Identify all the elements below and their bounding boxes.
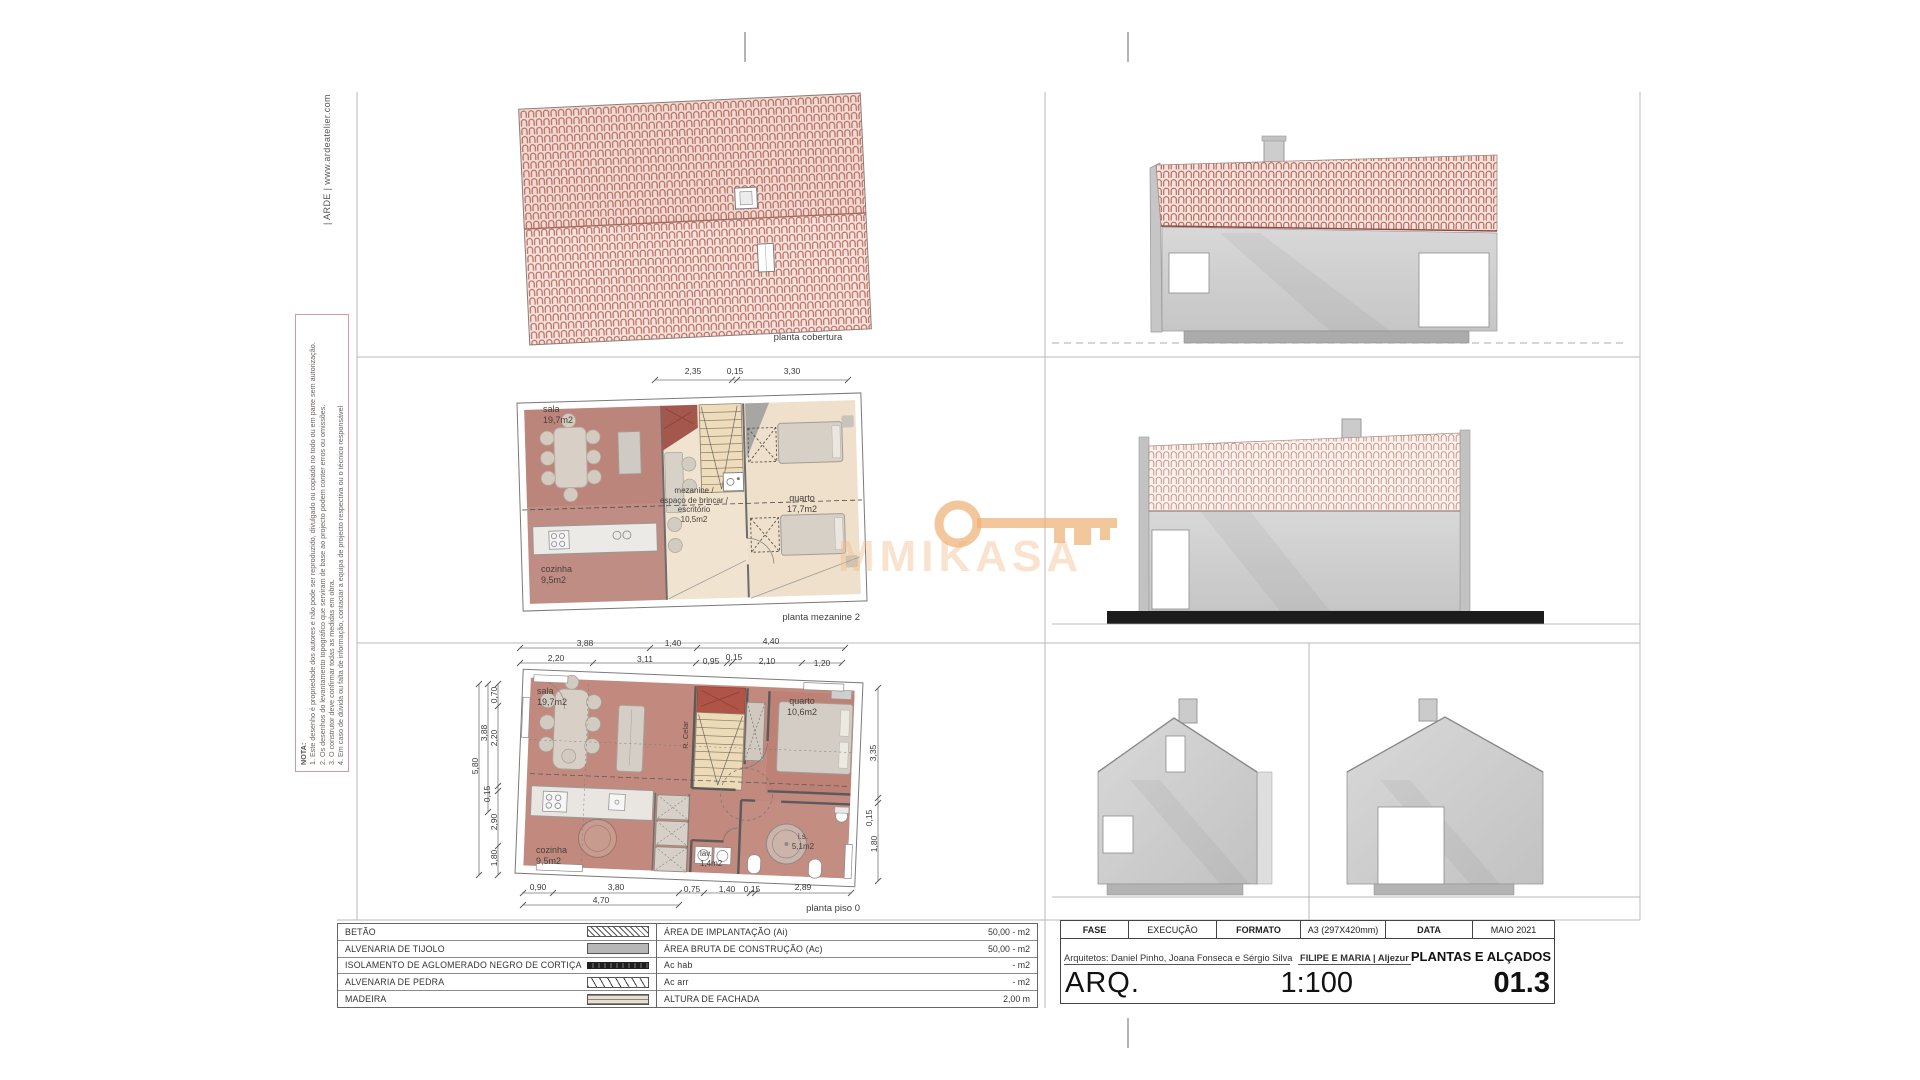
nota-title: NOTA:: [299, 321, 308, 765]
area-value: 2,00 m: [1003, 994, 1030, 1004]
discipline-code: ARQ.: [1065, 967, 1140, 1000]
materials-legend: BETÃO ALVENARIA DE TIJOLO ISOLAMENTO DE …: [337, 923, 1038, 1008]
wood-swatch: [587, 994, 649, 1005]
fase-value: EXECUÇÃO: [1129, 921, 1217, 938]
atelier-brand: | ARDE | www.ardeatelier.com: [322, 65, 332, 225]
dim-label: 1,40: [719, 884, 736, 894]
area-value: 50,00 - m2: [988, 927, 1030, 937]
area-label: Ac hab: [664, 960, 693, 970]
dim-label: 1,80: [489, 850, 499, 867]
sheet-number: 01.3: [1494, 967, 1550, 1000]
room-label-is: i.s. 5,1m2: [792, 832, 814, 851]
key-icon: [932, 498, 1132, 558]
data-value: MAIO 2021: [1473, 921, 1554, 938]
dim-label: 0,70: [489, 687, 499, 704]
room-label-lav: lav. 1,4m2: [700, 849, 722, 868]
dim-label: 0,15: [727, 366, 744, 376]
mezzanine-plan-caption: planta mezanine 2: [745, 612, 860, 623]
area-label: ALTURA DE FACHADA: [664, 994, 760, 1004]
dim-label: 5,80: [470, 758, 480, 775]
materials-column: BETÃO ALVENARIA DE TIJOLO ISOLAMENTO DE …: [338, 924, 657, 1007]
dim-label: 2,90: [489, 814, 499, 831]
room-label-quarto: quarto 10,6m2: [787, 696, 817, 717]
area-value: - m2: [1012, 977, 1030, 987]
dim-label: 0,15: [482, 786, 492, 803]
material-label: ISOLAMENTO DE AGLOMERADO NEGRO DE CORTIÇ…: [345, 960, 582, 970]
title-block-main-row: ARQ. 1:100 01.3: [1061, 965, 1554, 1003]
dim-label: 0,15: [744, 884, 761, 894]
elevation-side-2: [1052, 419, 1640, 624]
dim-label: 0,15: [864, 810, 874, 827]
area-value: 50,00 - m2: [988, 944, 1030, 954]
elevation-gable-left: [1098, 699, 1272, 895]
dim-label: 0,95: [703, 656, 720, 666]
room-label-storage: R. Celar: [681, 721, 692, 749]
floor-plan-caption: planta piso 0: [765, 903, 860, 914]
area-label: ÁREA DE IMPLANTAÇÃO (Ai): [664, 927, 788, 937]
dim-label: 3,88: [479, 725, 489, 742]
dim-label: 4,40: [763, 636, 780, 646]
room-label-cozinha: cozinha 9,5m2: [541, 564, 572, 585]
concrete-hatch-swatch: [587, 926, 649, 937]
brick-swatch: [587, 943, 649, 954]
formato-label: FORMATO: [1217, 921, 1301, 938]
title-block-project-row: Arquitetos: Daniel Pinho, Joana Fonseca …: [1061, 939, 1554, 965]
title-block: FASE EXECUÇÃO FORMATO A3 (297X420mm) DAT…: [1060, 920, 1555, 1004]
dim-label: 3,30: [784, 366, 801, 376]
nota-line: 4. Em caso de dúvida ou falta de informa…: [336, 321, 345, 765]
stone-hatch-swatch: [587, 977, 649, 988]
drawing-sheet: | ARDE | www.ardeatelier.com NOTA: 1. Es…: [0, 0, 1920, 1080]
drawing-scale: 1:100: [1140, 967, 1494, 1000]
material-label: BETÃO: [345, 927, 376, 937]
formato-value: A3 (297X420mm): [1301, 921, 1386, 938]
data-label: DATA: [1386, 921, 1473, 938]
dim-label: 1,40: [665, 638, 682, 648]
cork-insulation-swatch: [587, 962, 649, 969]
dim-label: 4,70: [593, 895, 610, 905]
dim-label: 0,90: [530, 882, 547, 892]
skylight-lower: [757, 243, 774, 272]
title-block-meta-row: FASE EXECUÇÃO FORMATO A3 (297X420mm) DAT…: [1061, 921, 1554, 939]
dim-label: 0,75: [684, 884, 701, 894]
area-value: - m2: [1012, 960, 1030, 970]
dim-label: 2,20: [548, 653, 565, 663]
room-label-sala: sala 19,7m2: [543, 404, 573, 425]
sheet-title: PLANTAS E ALÇADOS: [1411, 949, 1551, 965]
area-label: Ac arr: [664, 977, 689, 987]
nota-line: 1. Este desenho é propriedade dos autore…: [308, 321, 317, 765]
nota-line: 2. Os desenhos do levantamento topográfi…: [318, 321, 327, 765]
room-label-quarto: quarto 17,7m2: [787, 493, 817, 514]
dim-label: 0,15: [726, 652, 743, 662]
dim-label: 1,20: [814, 658, 831, 668]
areas-column: ÁREA DE IMPLANTAÇÃO (Ai)50,00 - m2 ÁREA …: [657, 924, 1037, 1007]
dim-label: 3,35: [868, 745, 878, 762]
dim-label: 2,89: [795, 882, 812, 892]
architects-names: Arquitetos: Daniel Pinho, Joana Fonseca …: [1064, 953, 1290, 965]
room-label-mezzanine: mezanine / espaço de brincar / escritóri…: [660, 486, 728, 524]
elevation-side-1: [1052, 136, 1625, 343]
mezzanine-dim-line: [652, 377, 851, 383]
nota-line: 3. O construtor deve confirmar todas as …: [327, 321, 336, 765]
dim-label: 3,88: [577, 638, 594, 648]
material-label: MADEIRA: [345, 994, 386, 1004]
room-label-cozinha: cozinha 9,5m2: [536, 845, 567, 866]
dim-label: 1,80: [869, 836, 879, 853]
dim-label: 2,35: [685, 366, 702, 376]
room-label-sala: sala 19,7m2: [537, 686, 567, 707]
area-label: ÁREA BRUTA DE CONSTRUÇÃO (Ac): [664, 944, 823, 954]
nota-box: NOTA: 1. Este desenho é propriedade dos …: [295, 314, 349, 772]
roof-plan-caption: planta cobertura: [763, 332, 853, 343]
project-client: FILIPE E MARIA | Aljezur: [1298, 953, 1411, 965]
dim-label: 2,20: [489, 730, 499, 747]
fase-label: FASE: [1061, 921, 1129, 938]
material-label: ALVENARIA DE TIJOLO: [345, 944, 445, 954]
dim-label: 2,10: [759, 656, 776, 666]
skylight-upper: [735, 187, 758, 209]
dim-label: 3,80: [608, 882, 625, 892]
roof-plan-drawing: [519, 93, 872, 345]
material-label: ALVENARIA DE PEDRA: [345, 977, 444, 987]
dim-label: 3,11: [637, 654, 653, 664]
